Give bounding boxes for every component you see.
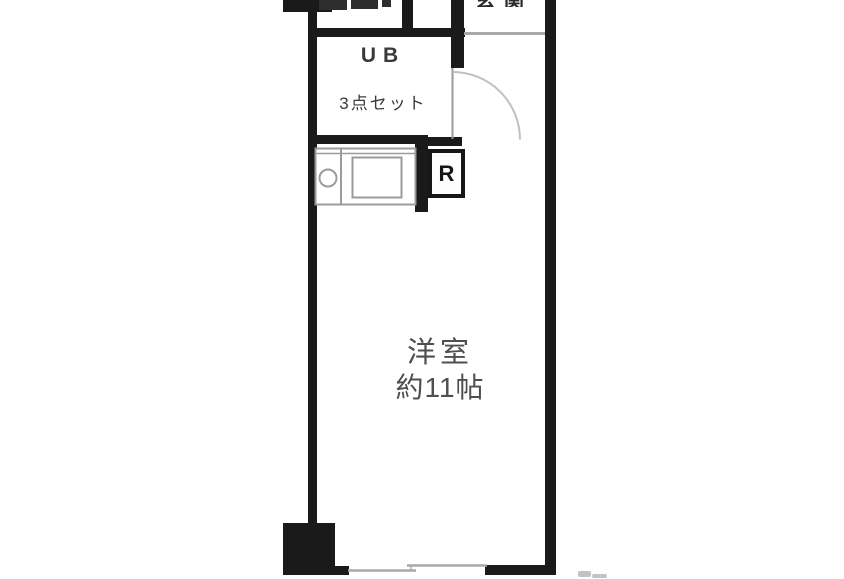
wall-ub-top — [308, 28, 465, 37]
cutoff-fixture-part — [351, 0, 378, 9]
main-room-label: 洋室 — [340, 329, 540, 371]
cutoff-fixture-top-left — [319, 0, 391, 10]
kitchen-unit — [316, 149, 416, 205]
wall-left — [308, 0, 317, 525]
wall-ub-bottom — [308, 135, 428, 144]
floorplan-drawing — [0, 0, 844, 579]
stove-burner-icon — [320, 170, 337, 187]
door-swing-arc — [453, 72, 521, 140]
refrigerator-box: R — [428, 149, 465, 198]
cutoff-mark-bottom-right — [578, 571, 607, 578]
wall-right — [545, 0, 556, 575]
floorplan-canvas: UB 3点セット R 洋室 約11帖 玄関 — [0, 0, 844, 579]
cutoff-mark — [592, 574, 607, 578]
wall-top-room-divider — [402, 0, 413, 33]
cutoff-fixture-part — [319, 0, 347, 10]
window-bottom — [348, 566, 487, 571]
kitchen-sink-icon — [353, 158, 402, 198]
unit-bath-label: UB — [317, 44, 449, 68]
entrance-label-text: 玄関 — [466, 0, 542, 7]
entrance-label-cutoff: 玄関 — [466, 0, 542, 7]
wall-door-stub — [426, 137, 462, 146]
wall-entrance-left — [451, 0, 464, 68]
cutoff-fixture-part — [382, 0, 391, 7]
unit-bath-set-label: 3点セット — [313, 89, 453, 114]
wall-bottom-right — [485, 565, 556, 575]
main-room-size-label: 約11帖 — [340, 366, 540, 406]
walls — [283, 0, 556, 575]
refrigerator-label: R — [439, 161, 455, 187]
pillar-bottom-left — [283, 523, 335, 575]
cutoff-mark — [578, 571, 591, 577]
wall-bottom-left-stub — [333, 566, 349, 575]
wall-kitchen-right — [415, 135, 428, 212]
